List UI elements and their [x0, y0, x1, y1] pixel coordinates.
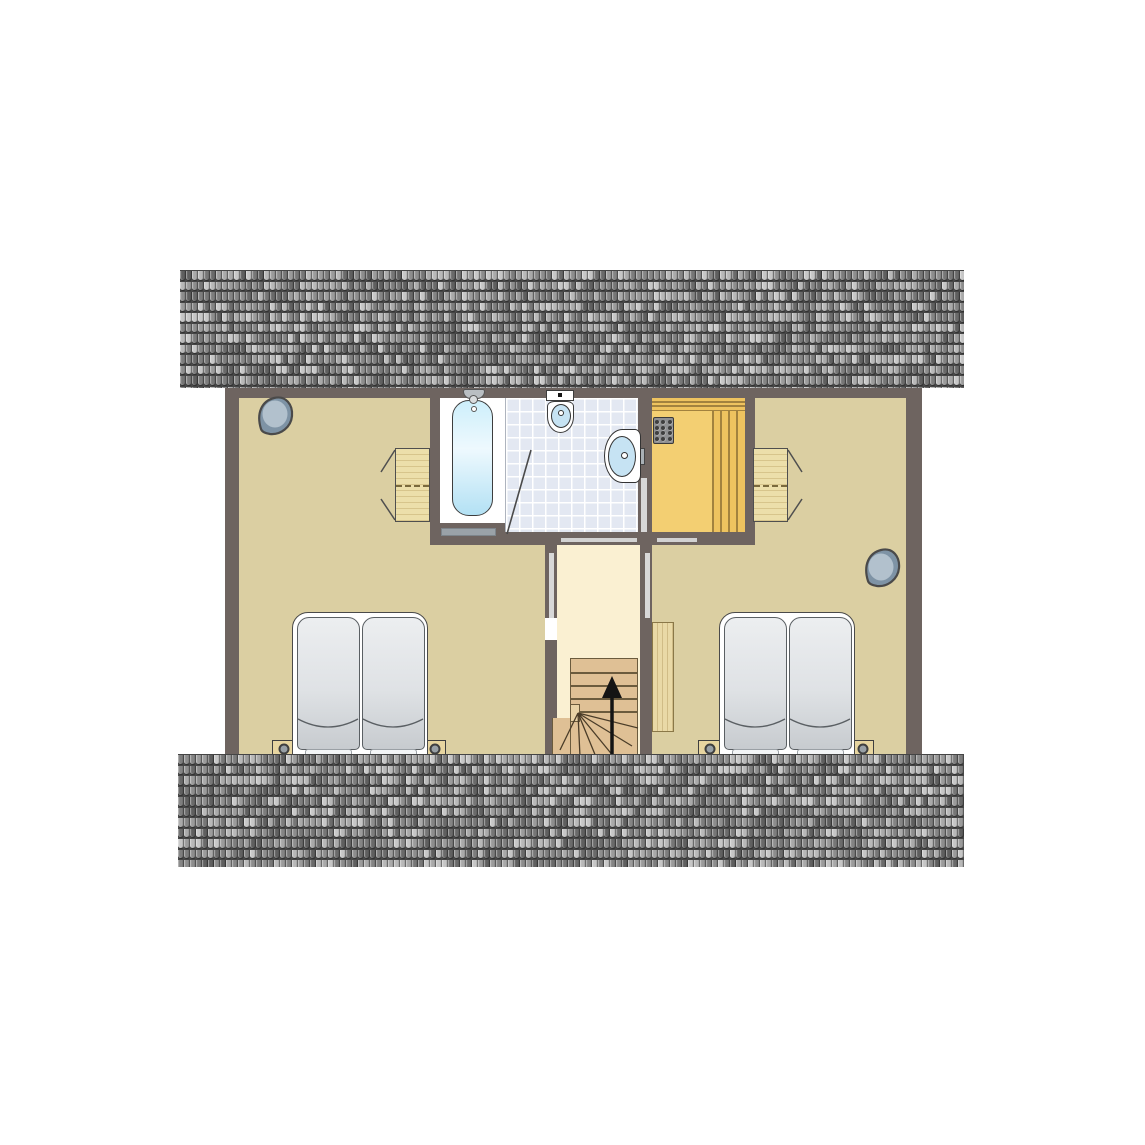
roof-tile-row — [180, 302, 964, 313]
roof-tile — [960, 333, 964, 344]
roof-tile-row — [180, 270, 964, 281]
heater-stone-dot — [655, 426, 659, 430]
lamp-icon — [429, 743, 440, 754]
roof-tile — [958, 859, 964, 867]
roof-tile — [960, 291, 964, 302]
double-bed-left — [292, 612, 428, 760]
roof-tile-row — [180, 365, 964, 376]
roof-tile-row — [178, 765, 964, 776]
sauna-heater — [653, 417, 674, 444]
roof-tile-row — [180, 323, 964, 334]
heater-stone-dot — [668, 437, 672, 441]
roof-tile — [960, 270, 964, 281]
bathtub-spout — [469, 395, 478, 404]
roof-tile — [958, 817, 964, 828]
roof-tile-row — [178, 838, 964, 849]
roof-tile — [958, 775, 964, 786]
lamp-icon — [857, 743, 868, 754]
roof-tile — [958, 838, 964, 849]
mattress — [297, 617, 360, 750]
heater-stone-dot — [655, 431, 659, 435]
bathtub-sill — [441, 528, 496, 536]
roof-tile-row — [178, 859, 964, 867]
roof-tile — [958, 796, 964, 807]
roof-tile — [960, 323, 964, 334]
roof-tile-row — [178, 786, 964, 797]
roof-strip-top — [180, 270, 964, 388]
newel-post — [570, 704, 580, 722]
roof-tile-row — [178, 849, 964, 860]
heater-stone-dot — [661, 431, 665, 435]
roof-tile-row — [178, 775, 964, 786]
roof-tile — [958, 786, 964, 797]
mattress — [724, 617, 787, 750]
roof-tile-row — [178, 828, 964, 839]
heater-stone-dot — [661, 426, 665, 430]
sauna-bench-vertical-planks — [712, 411, 745, 532]
roof-tile-row — [180, 291, 964, 302]
roof-tile — [958, 828, 964, 839]
roof-tile-row — [180, 344, 964, 355]
lamp-icon — [278, 743, 289, 754]
toilet-button — [558, 393, 562, 397]
roof-tile — [960, 365, 964, 376]
roof-tile-row — [180, 386, 964, 389]
wardrobe-right — [753, 448, 788, 522]
toilet-basin — [551, 404, 571, 428]
roof-tile-row — [180, 354, 964, 365]
sauna-bench-top-planks — [652, 398, 745, 411]
roof-tile-row — [180, 375, 964, 386]
roof-tile — [958, 849, 964, 860]
door-opening-bedroom-left — [545, 618, 557, 640]
door-leaf-sauna-wall — [641, 478, 647, 532]
roof-tile — [960, 354, 964, 365]
washbasin-drain — [621, 452, 628, 459]
threshold-bathroom-door — [561, 538, 637, 542]
roof-strip-bottom — [178, 754, 964, 867]
room-bedroom-left-lower — [430, 545, 545, 754]
wardrobe-left — [395, 448, 430, 522]
staircase — [570, 658, 638, 755]
roof-tile — [958, 765, 964, 776]
heater-stone-dot — [661, 437, 665, 441]
bathtub — [452, 400, 493, 516]
roof-tile — [960, 386, 964, 389]
roof-tile — [960, 312, 964, 323]
roof-tile — [958, 807, 964, 818]
roof-tile-row — [178, 754, 964, 765]
heater-stone-dot — [655, 437, 659, 441]
toilet-drain — [558, 410, 564, 416]
door-leaf-hallway-left — [549, 553, 554, 618]
closet-right-bedroom — [652, 622, 674, 732]
winder-steps — [552, 718, 570, 755]
door-leaf-hallway-right — [645, 553, 650, 618]
mattress — [789, 617, 852, 750]
double-bed-right — [719, 612, 855, 760]
roof-tile — [958, 754, 964, 765]
threshold-sauna-door — [657, 538, 697, 542]
roof-tile-row — [180, 281, 964, 292]
roof-tile-row — [180, 333, 964, 344]
roof-tile-row — [180, 312, 964, 323]
heater-stone-dot — [668, 426, 672, 430]
roof-tile — [960, 281, 964, 292]
roof-tile — [960, 302, 964, 313]
heater-stone-dot — [668, 431, 672, 435]
heater-stone-dot — [661, 420, 665, 424]
roof-tile — [960, 344, 964, 355]
roof-tile-row — [178, 807, 964, 818]
roof-tile — [960, 375, 964, 386]
roof-tile-row — [178, 796, 964, 807]
lamp-icon — [704, 743, 715, 754]
heater-stone-dot — [655, 420, 659, 424]
bathtub-overflow — [471, 406, 477, 412]
mattress — [362, 617, 425, 750]
roof-tile-row — [178, 817, 964, 828]
heater-stone-dot — [668, 420, 672, 424]
floor-plan-canvas — [0, 0, 1145, 1145]
